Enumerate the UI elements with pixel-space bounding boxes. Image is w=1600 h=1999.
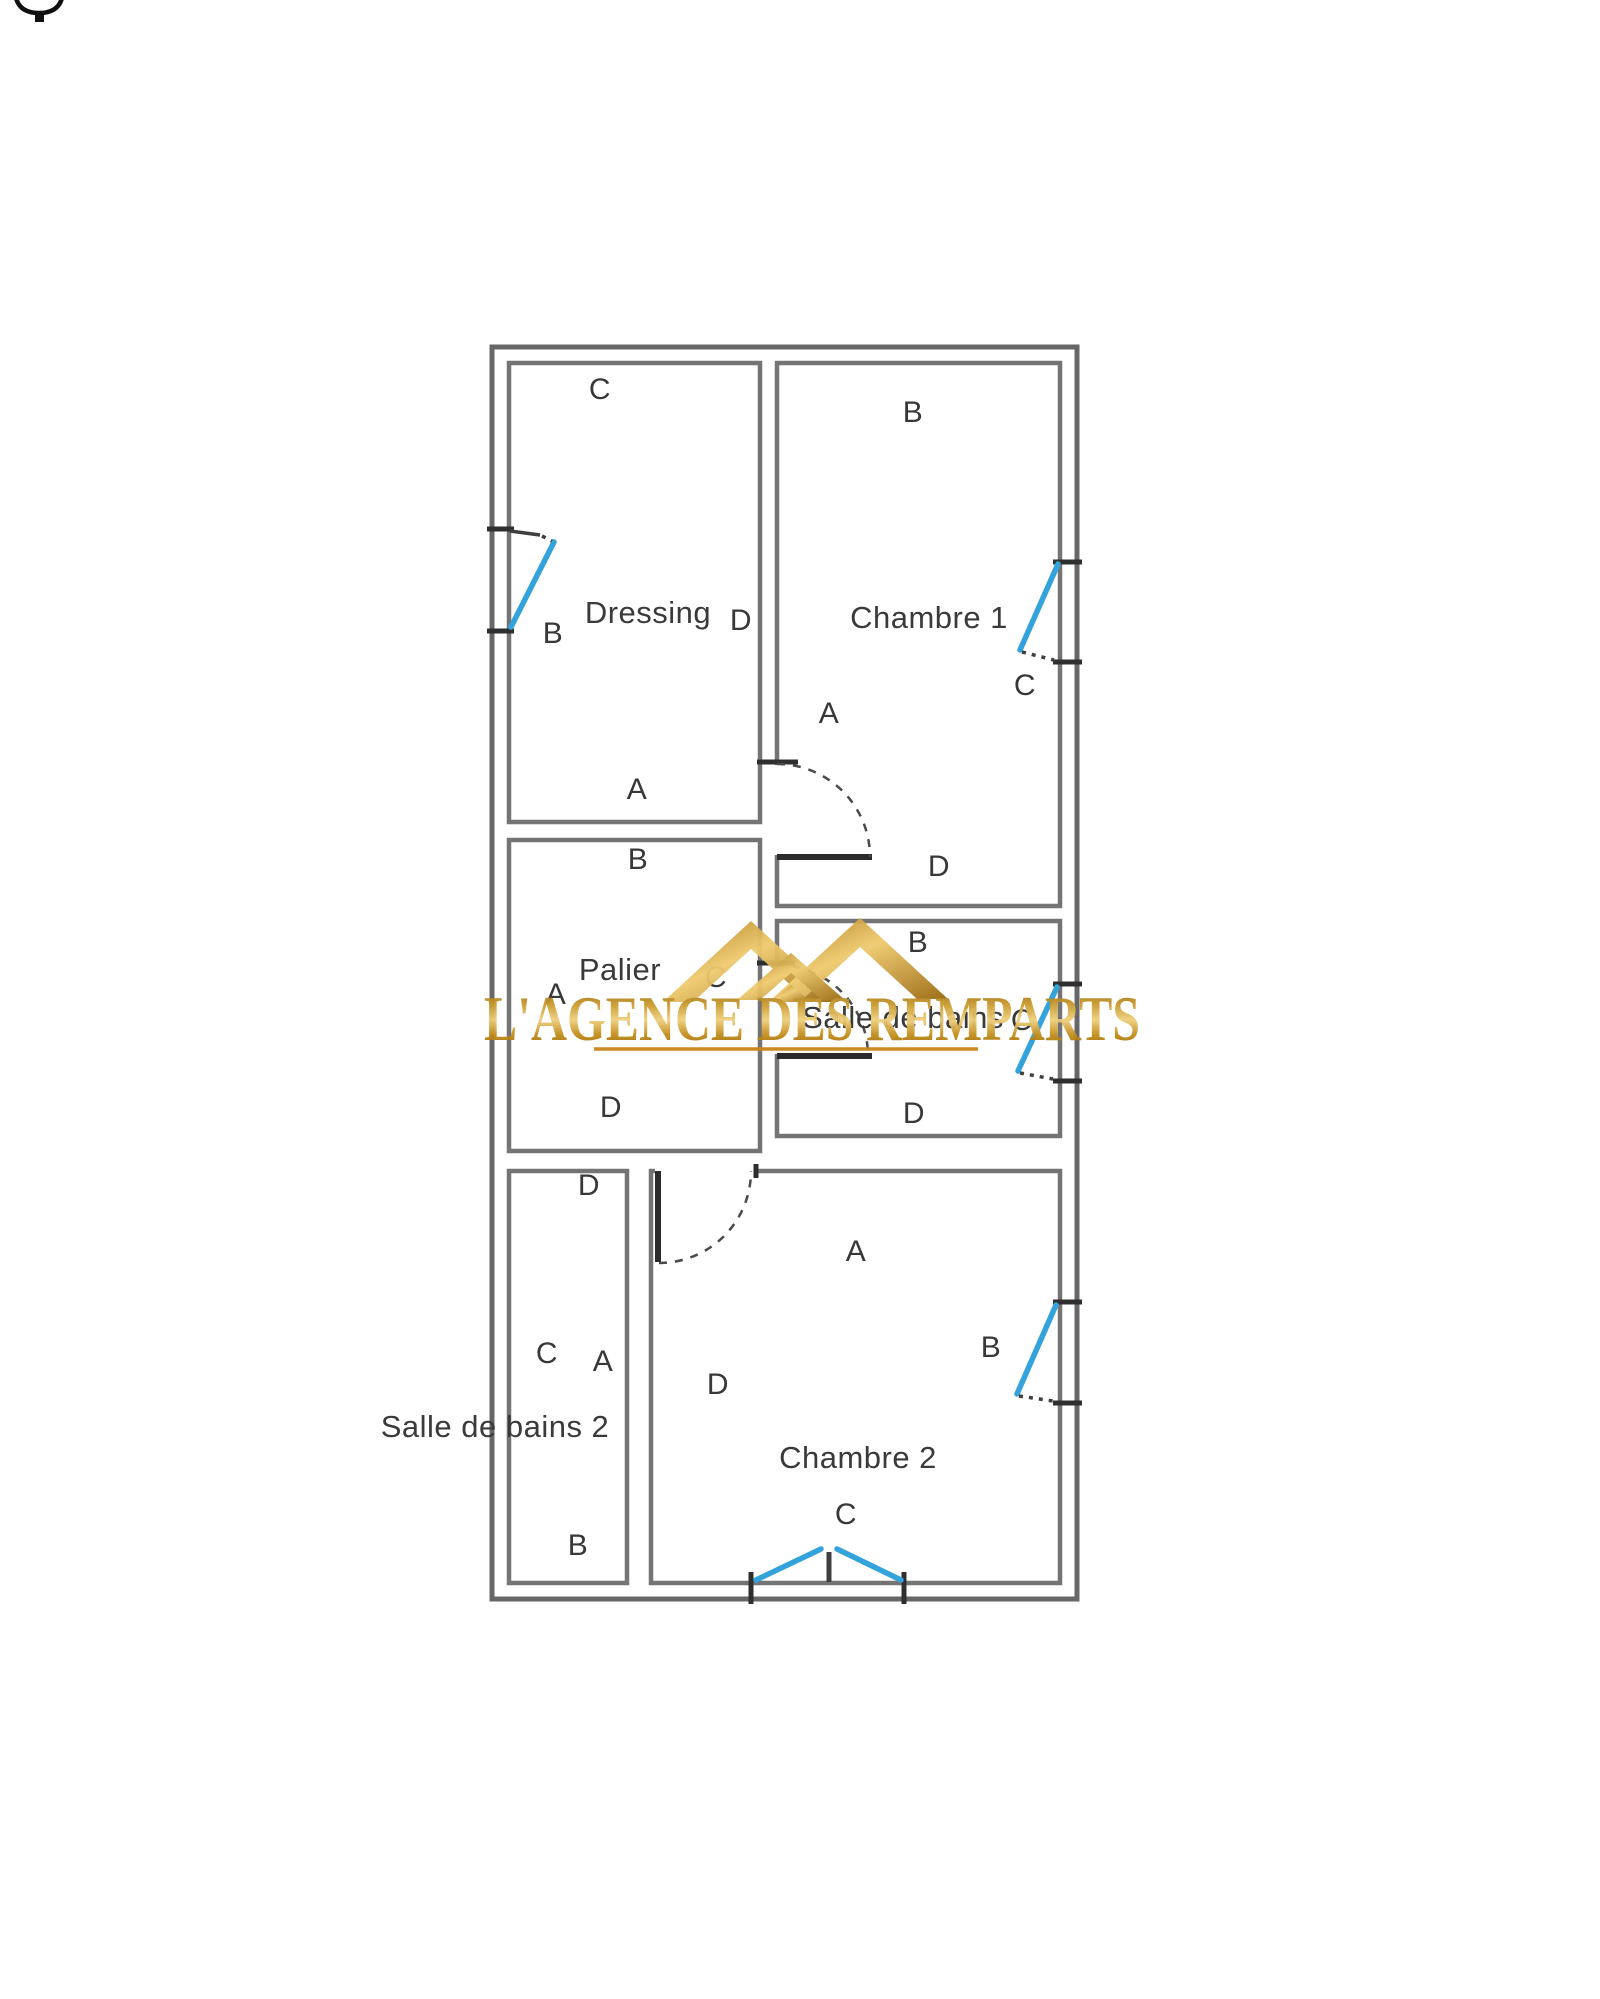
dressing-letter-left: B	[543, 617, 564, 651]
room-name-palier: Palier	[579, 952, 661, 988]
chambre1-letter-top: B	[903, 396, 924, 430]
dressing-letter-right: D	[730, 604, 752, 638]
salle-de-bains-2-letter-bottom: B	[568, 1529, 589, 1563]
room-name-dressing: Dressing	[585, 595, 711, 631]
chambre2-letter-window: B	[981, 1331, 1002, 1365]
palier-letter-top: B	[628, 843, 649, 877]
salle-de-bains-2-letter-top: D	[578, 1169, 600, 1203]
room-name-salle-de-bains-2: Salle de bains 2	[381, 1409, 610, 1445]
labels-layer: Dressing C D A B Chambre 1 B A D C Palie…	[0, 0, 1600, 1999]
floorplan-page: Dressing C D A B Chambre 1 B A D C Palie…	[0, 0, 1600, 1999]
salle-de-bains-letter-bottom: D	[903, 1097, 925, 1131]
salle-de-bains-letter-top: B	[908, 926, 929, 960]
palier-letter-bottom: D	[600, 1091, 622, 1125]
chambre2-letter-top: A	[846, 1235, 867, 1269]
salle-de-bains-2-letter-left: C	[536, 1337, 558, 1371]
salle-de-bains-letter-window: C	[1011, 1004, 1033, 1038]
room-name-salle-de-bains: Salle de bains	[802, 1000, 1004, 1036]
dressing-letter-top: C	[589, 373, 611, 407]
chambre1-letter-bottom: D	[928, 850, 950, 884]
palier-letter-left: A	[546, 978, 567, 1012]
chambre1-letter-left: A	[819, 697, 840, 731]
room-name-chambre2: Chambre 2	[779, 1440, 937, 1476]
salle-de-bains-2-letter-right: A	[593, 1345, 614, 1379]
top-left-cropped-icon	[0, 0, 90, 30]
room-name-chambre1: Chambre 1	[850, 600, 1008, 636]
chambre2-letter-upper-left: D	[707, 1368, 729, 1402]
chambre1-letter-window: C	[1014, 669, 1036, 703]
dressing-letter-bottom: A	[627, 773, 648, 807]
chambre2-letter-bottom: C	[835, 1498, 857, 1532]
palier-letter-right: C	[705, 961, 727, 995]
